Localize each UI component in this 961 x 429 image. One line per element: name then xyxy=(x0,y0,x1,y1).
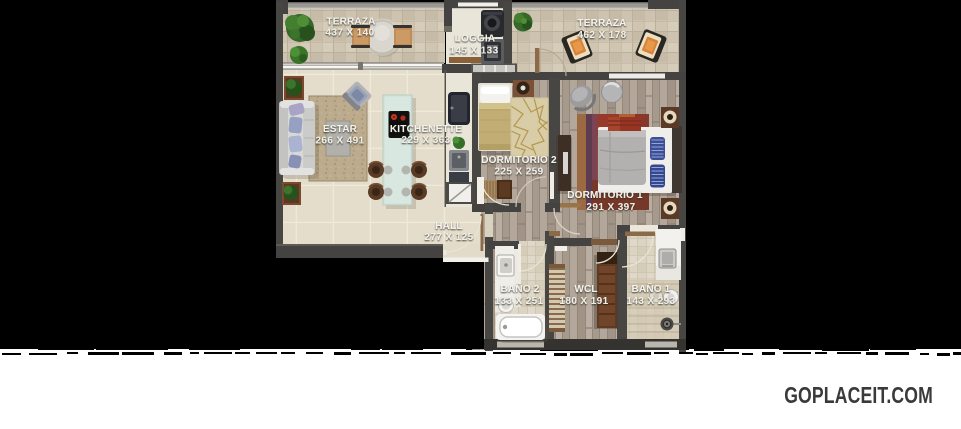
svg-text:KITCHENETTE: KITCHENETTE xyxy=(390,124,462,135)
svg-text:TERRAZA: TERRAZA xyxy=(577,18,626,29)
svg-text:BAÑO 1: BAÑO 1 xyxy=(632,282,671,295)
svg-text:266 X 491: 266 X 491 xyxy=(315,136,364,147)
svg-text:LOGGIA: LOGGIA xyxy=(455,34,496,45)
svg-text:145 X 133: 145 X 133 xyxy=(449,46,498,57)
svg-text:WCL: WCL xyxy=(574,284,597,295)
svg-text:DORMITORIO 1: DORMITORIO 1 xyxy=(567,190,643,201)
svg-text:229 X 363: 229 X 363 xyxy=(401,135,450,146)
svg-text:180 X 191: 180 X 191 xyxy=(559,296,608,307)
svg-text:133 X 251: 133 X 251 xyxy=(494,296,543,307)
svg-text:437 X 140: 437 X 140 xyxy=(325,28,374,39)
svg-text:143 X 293: 143 X 293 xyxy=(626,296,675,307)
svg-text:GOPLACEIT.COM: GOPLACEIT.COM xyxy=(784,383,933,409)
svg-text:HALL: HALL xyxy=(435,221,462,232)
svg-text:BAÑO 2: BAÑO 2 xyxy=(501,282,540,295)
svg-text:DORMITORIO 2: DORMITORIO 2 xyxy=(481,155,557,166)
svg-text:225 X 259: 225 X 259 xyxy=(494,167,543,178)
svg-text:277 X 125: 277 X 125 xyxy=(424,232,473,243)
svg-text:ESTAR: ESTAR xyxy=(323,124,358,135)
svg-text:462 X 178: 462 X 178 xyxy=(577,30,626,41)
svg-text:291 X 397: 291 X 397 xyxy=(586,202,635,213)
svg-text:TERRAZA: TERRAZA xyxy=(326,17,375,28)
